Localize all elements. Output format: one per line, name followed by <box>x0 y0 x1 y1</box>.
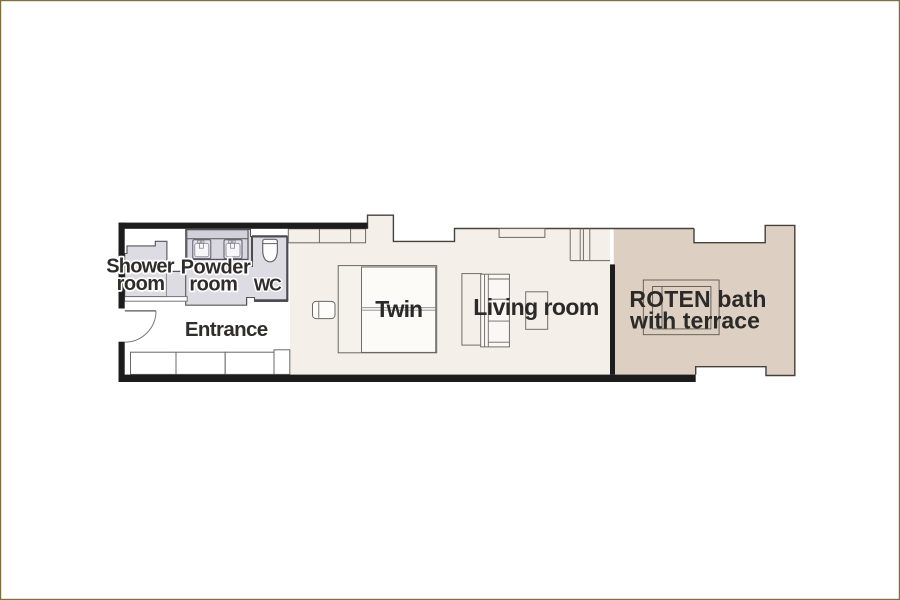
svg-text:Twin: Twin <box>375 296 422 322</box>
svg-text:WC: WC <box>254 275 282 295</box>
svg-text:Entrance: Entrance <box>185 318 268 341</box>
svg-text:room: room <box>117 273 165 295</box>
svg-text:room: room <box>189 274 237 296</box>
svg-text:with terrace: with terrace <box>629 307 760 333</box>
svg-text:Living room: Living room <box>473 294 599 320</box>
